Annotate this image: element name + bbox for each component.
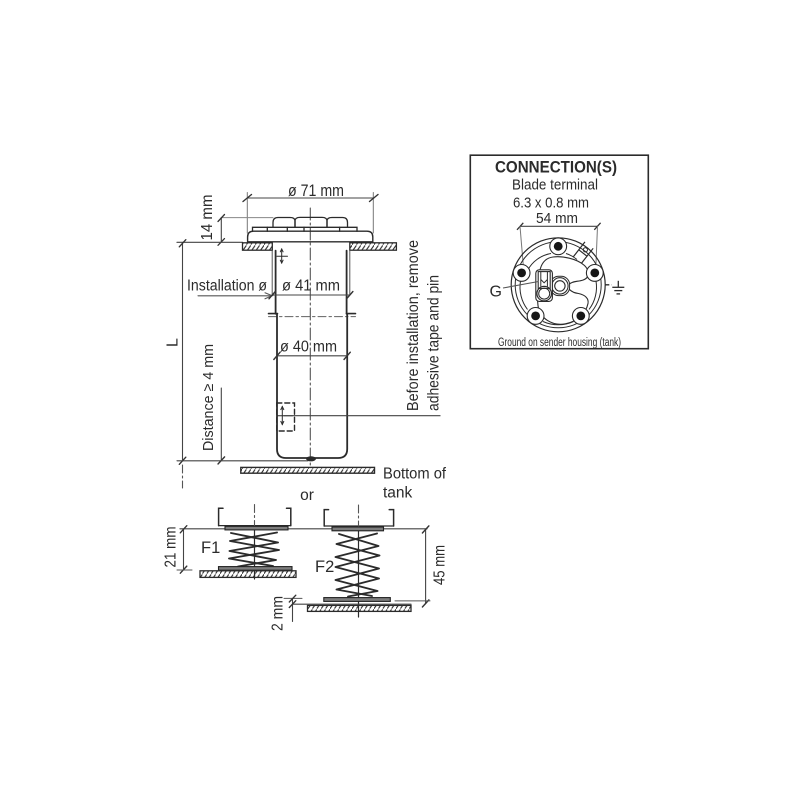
svg-text:6.3 x 0.8 mm: 6.3 x 0.8 mm: [513, 195, 589, 212]
svg-text:F2: F2: [315, 558, 334, 576]
svg-text:45 mm: 45 mm: [432, 545, 449, 585]
svg-text:adhesive tape and pin: adhesive tape and pin: [426, 275, 443, 411]
svg-text:Before installation, remove: Before installation, remove: [405, 240, 422, 411]
svg-text:14 mm: 14 mm: [199, 195, 216, 241]
svg-text:Installation ø: Installation ø: [187, 278, 267, 295]
svg-text:L: L: [165, 338, 182, 347]
svg-text:Blade terminal: Blade terminal: [512, 177, 598, 194]
svg-text:ø 41 mm: ø 41 mm: [282, 278, 340, 295]
svg-text:or: or: [300, 487, 314, 504]
svg-text:ø 71 mm: ø 71 mm: [288, 182, 344, 200]
svg-text:ø 40 mm: ø 40 mm: [280, 339, 337, 356]
svg-text:CONNECTION(S): CONNECTION(S): [495, 159, 617, 177]
svg-text:Ground on sender housing (tank: Ground on sender housing (tank): [498, 337, 621, 349]
svg-text:21 mm: 21 mm: [162, 527, 179, 568]
svg-text:G: G: [490, 284, 502, 301]
svg-text:54 mm: 54 mm: [536, 210, 578, 227]
svg-text:2 mm: 2 mm: [270, 596, 287, 631]
svg-text:Distance ≥ 4 mm: Distance ≥ 4 mm: [200, 344, 217, 451]
svg-text:Bottom of: Bottom of: [383, 466, 447, 483]
svg-text:tank: tank: [383, 485, 413, 502]
svg-text:F1: F1: [201, 539, 220, 557]
